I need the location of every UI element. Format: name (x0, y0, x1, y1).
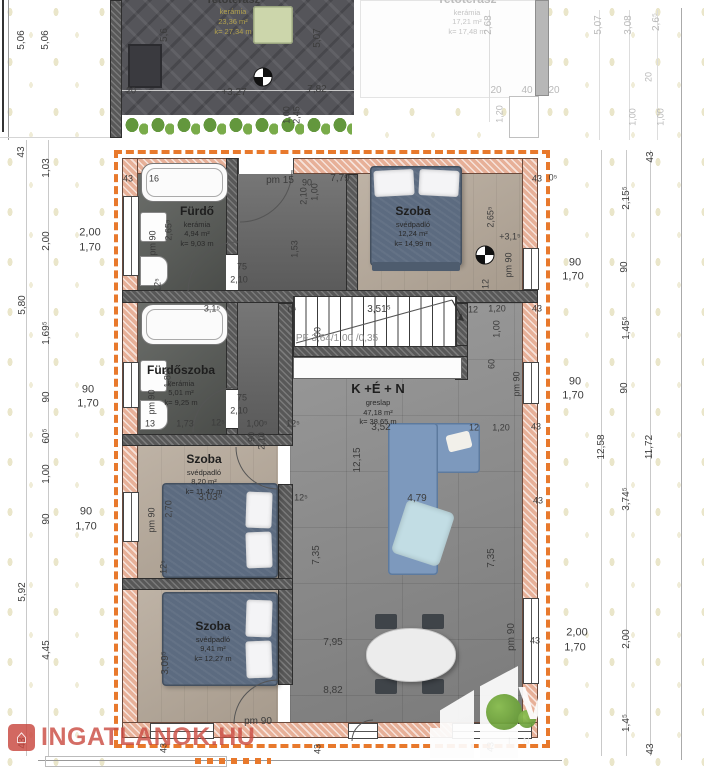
dimension-label: 43 (314, 744, 323, 754)
dimension-label: 3,09⁵ (161, 651, 171, 675)
dimension-label: 1,89⁵ (164, 366, 173, 387)
dimension-label: 1,03 (42, 158, 52, 177)
dimension-label: 12,15 (353, 447, 363, 472)
dimension-label: 1,73 (176, 420, 194, 429)
dimension-label: 5,07 (313, 28, 323, 47)
dimension-label: 5,07 (594, 15, 604, 34)
dimension-label: 43 (531, 423, 541, 432)
dimension-label: 1,20 (492, 424, 510, 433)
room-label-furdoszoba: Fürdőszoba kerámia 5,01 m² k= 9,25 m (147, 363, 215, 408)
dimension-label: 2,10 (230, 407, 248, 416)
dimension-label: 5,06 (17, 30, 27, 49)
dimension-label: 7,95 (323, 638, 342, 648)
dimension-label: 75 (237, 263, 247, 272)
dimension-chain-line (2, 0, 4, 132)
dimension-label: 5,80 (18, 295, 28, 314)
chair (422, 614, 444, 629)
dimension-label: 90 (569, 377, 581, 388)
dimension-label: pm 90 (148, 507, 157, 532)
terrace-right-step (509, 96, 539, 138)
dimension-label: 43 (17, 146, 27, 157)
pillow (245, 532, 272, 569)
room-label-furdo: Fürdő kerámia 4,94 m² k= 9,03 m (180, 204, 214, 249)
window (523, 248, 539, 290)
dimension-label: 12 (482, 279, 491, 289)
dimension-label: 1,70 (79, 243, 100, 254)
orange-dash-segment (195, 758, 271, 764)
pillow (418, 169, 459, 197)
dimension-label: 90 (80, 507, 92, 518)
dimension-label: 1,45⁵ (622, 316, 632, 340)
dimension-label: 7,35 (487, 548, 497, 567)
watermark-ingatlanok: ⌂ INGATLANOK.HU (8, 723, 255, 752)
dimension-label: 1,00 (311, 183, 320, 201)
pillow (245, 641, 272, 679)
dimension-label: 12⁵ (160, 560, 169, 574)
dimension-label: 7,82 (307, 85, 326, 95)
dimension-label: 20 (548, 86, 559, 96)
dimension-label: pm 90 (149, 230, 158, 255)
dimension-label: 1,70 (75, 522, 96, 533)
dimension-label: 90 (569, 258, 581, 269)
building-shape (430, 728, 446, 758)
dimension-label: 43 (646, 743, 656, 754)
dimension-label: 5,06 (41, 30, 51, 49)
dimension-label: 2,10 (258, 432, 267, 450)
dimension-label: 3,03⁵ (198, 493, 222, 503)
floorplan-canvas: Tetőterasz kerámia 23,36 m² k= 27,34 m T… (0, 0, 704, 768)
dimension-label: 2,00 (79, 228, 100, 239)
dimension-label: PF 3,64/1,00 /0,35 (296, 334, 378, 344)
dimension-label: 4,79 (407, 494, 426, 504)
dimension-label: 7,79 (330, 174, 349, 184)
watermark-brand-text: INGATLANOK.HU (41, 723, 255, 752)
dimension-label: 1,53 (291, 240, 300, 258)
dimension-label: 13 (145, 420, 155, 429)
dimension-label: 60 (488, 359, 497, 369)
dimension-label: 1,70 (562, 272, 583, 283)
dimension-label: 11,72 (645, 435, 655, 459)
interior-wall (346, 174, 358, 292)
dimension-label: 3,1⁵ (204, 305, 220, 314)
room-label-szoba-2: Szoba svédpadló 8,20 m² k= 11,47 m (186, 452, 223, 497)
room-label-szoba-1: Szoba svédpadló 12,24 m² k= 14,99 m (394, 204, 431, 249)
dimension-label: 2,10 (230, 276, 248, 285)
dimension-label: 12⁵ (286, 420, 300, 429)
logo-letter: V (518, 680, 549, 726)
dimension-label: 2,68 (484, 15, 494, 34)
dimension-label: 2,15⁵ (622, 186, 632, 210)
dimension-label: 5,6 (160, 28, 170, 42)
house-icon: ⌂ (8, 724, 35, 751)
entry-door-opening (238, 158, 294, 174)
dimension-label: 43 (532, 175, 542, 184)
watermark-logo: V I N (430, 648, 570, 763)
dimension-label: 12⁵ (211, 419, 225, 428)
room-label-szoba-3: Szoba svédpadló 9,41 m² k= 12,27 m (194, 619, 231, 664)
dimension-label: 1,70 (77, 399, 98, 410)
window (523, 362, 539, 404)
dimension-label: 43 (123, 175, 133, 184)
dimension-label: 16 (149, 175, 159, 184)
dimension-label: 12 (469, 424, 479, 433)
dimension-chain-line (681, 8, 682, 760)
dimension-label: 5,92 (18, 582, 28, 601)
dimension-label: 1,00⁵ (246, 420, 267, 429)
room-label-nappali: K +É + N greslap 47,18 m² k= 38,65 m (351, 381, 404, 427)
dimension-label: 40 (521, 86, 532, 96)
terrace-left-wall (110, 0, 122, 138)
dimension-label: pm 90 (507, 623, 517, 651)
left-margin-pattern (0, 0, 118, 768)
dimension-label: pm 90 (513, 371, 522, 396)
dimension-label: 1,00 (283, 106, 292, 124)
dimension-label: 2,70 (165, 500, 174, 518)
dimension-chain-line (626, 150, 627, 756)
dimension-label: 2,00 (566, 628, 587, 639)
dimension-label: 4,45 (42, 640, 52, 659)
pillow (373, 169, 414, 197)
room-label-tetoterasz-1: Tetőterasz kerámia 23,36 m² k= 27,34 m (206, 0, 260, 37)
dimension-label: 12,58 (597, 434, 607, 459)
dimension-label: 1,00 (629, 108, 638, 126)
dimension-label: 60⁵ (42, 428, 52, 443)
dimension-label: 1,00 (657, 108, 666, 126)
dimension-label: 0⁵ (288, 306, 297, 315)
dimension-label: 1,4⁵ (622, 714, 632, 732)
interior-wall (226, 293, 238, 390)
bed-footboard (372, 262, 460, 271)
dimension-label: 1,20 (496, 105, 505, 123)
dimension-label: 3,51⁵ (367, 305, 391, 315)
dimension-label: 43 (532, 305, 542, 314)
dimension-label: 7,35 (312, 545, 322, 564)
dimension-label: 90 (82, 385, 94, 396)
dimension-label: 43 (530, 637, 540, 646)
dimension-label: 3,08 (624, 15, 634, 34)
dimension-label: 2,65⁵ (487, 206, 496, 227)
stair-landing (293, 357, 462, 379)
window (123, 362, 139, 408)
dimension-label: 90 (42, 513, 52, 524)
dimension-label: 1,20 (488, 305, 506, 314)
dimension-label: 12⁵ (294, 494, 308, 503)
dimension-label: 43 (533, 497, 543, 506)
terrace-right-wall (535, 0, 549, 96)
interior-wall (122, 434, 293, 446)
dimension-label: 3,74⁵ (622, 487, 632, 511)
hedge (122, 113, 352, 139)
dimension-label: 8,82 (323, 686, 342, 696)
dimension-chain-line (0, 137, 120, 138)
dimension-label: 3,52 (371, 423, 390, 433)
dimension-label: 1,69⁵ (42, 321, 52, 345)
dimension-label: 90 (42, 391, 52, 402)
dimension-label: 12⁵ (154, 278, 163, 292)
dimension-label: pm 90 (148, 389, 157, 414)
dimension-label: 90 (620, 261, 630, 272)
window (123, 196, 139, 276)
dimension-label: 90 (620, 382, 630, 393)
dimension-label: 1,70 (562, 391, 583, 402)
dimension-label: 43 (646, 151, 656, 162)
dimension-label: 2,45 (293, 106, 302, 124)
dimension-label: 2,10 (300, 187, 309, 205)
pillow (245, 600, 272, 638)
dimension-chain-line (8, 0, 9, 140)
window (123, 492, 139, 542)
dimension-label: 2,00 (42, 231, 52, 250)
dimension-label: pm 15 (266, 176, 294, 186)
dimension-label: 90 (248, 432, 257, 442)
dimension-label: 20 (645, 72, 654, 82)
hall-floor (238, 174, 348, 292)
terrace-door-opening (348, 723, 378, 739)
dimension-label: 12 (468, 306, 478, 315)
dimension-chain-line (26, 140, 27, 756)
dimension-label: 1,00 (493, 320, 502, 338)
dimension-label: 2,6⁵ (652, 13, 662, 31)
tree-icon (486, 694, 522, 730)
dimension-label: 0⁵ (549, 174, 558, 183)
logo-subletters: I N (508, 736, 535, 746)
dimension-label: +3,27 (221, 88, 246, 98)
garden-bench (128, 44, 162, 88)
interior-wall (122, 578, 293, 590)
dimension-label: 1,00 (42, 464, 52, 483)
chair (375, 614, 397, 629)
dimension-label: pm 90 (505, 252, 514, 277)
pillow (245, 492, 272, 529)
dimension-label: +3,1⁵ (499, 233, 521, 242)
dimension-label: 75 (237, 394, 247, 403)
dimension-label: 20 (126, 87, 136, 96)
dimension-label: 2,65⁵ (165, 219, 174, 240)
dimension-label: 2,00 (622, 629, 632, 648)
chair (375, 679, 397, 694)
dimension-label: 20 (490, 86, 501, 96)
